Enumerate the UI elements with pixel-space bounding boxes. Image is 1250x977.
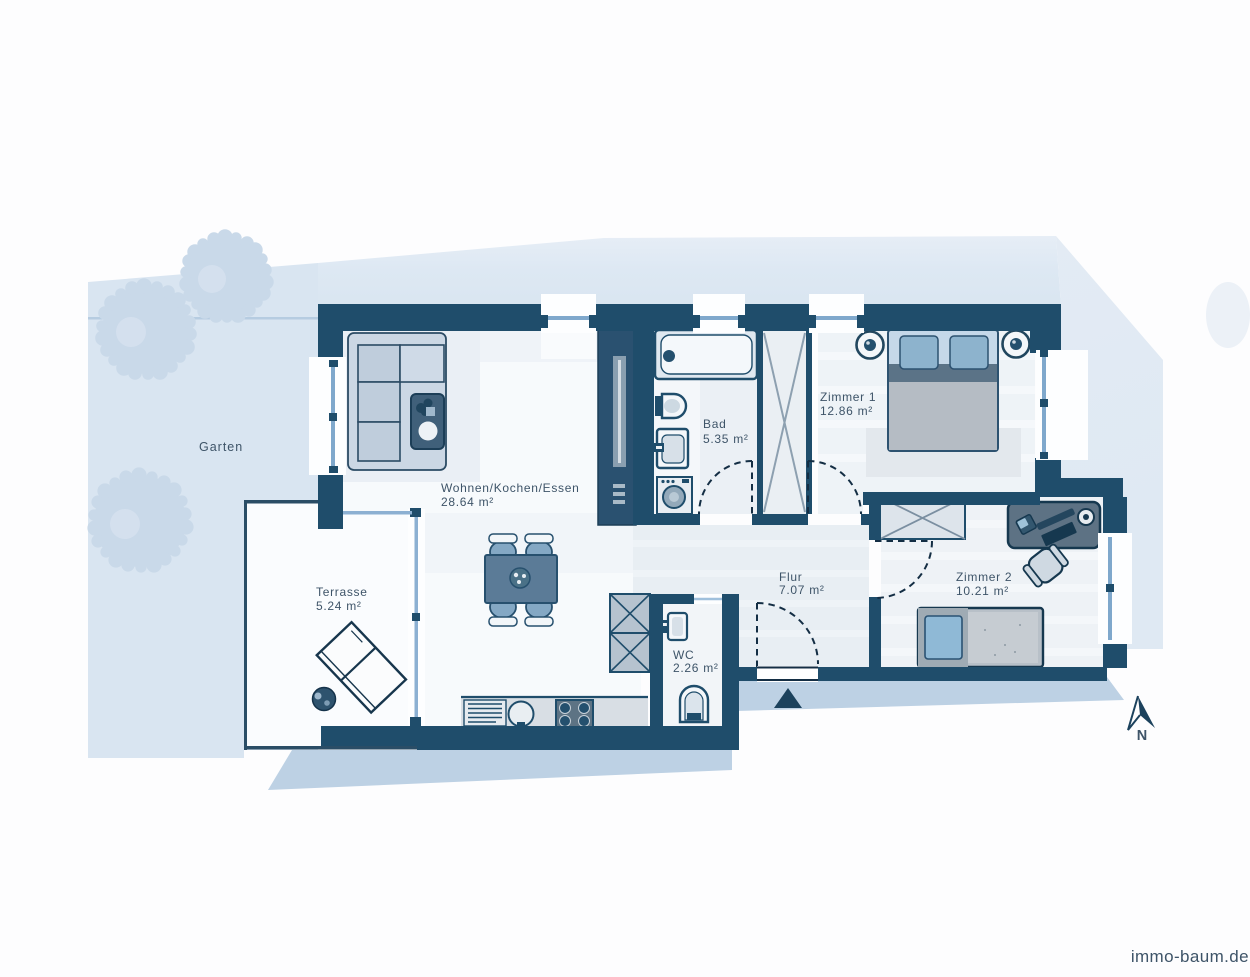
svg-text:5.24 m²: 5.24 m² xyxy=(316,599,362,613)
svg-text:immo-baum.de: immo-baum.de xyxy=(1131,947,1249,966)
svg-text:Bad: Bad xyxy=(703,417,726,431)
svg-text:12.86 m²: 12.86 m² xyxy=(820,404,873,418)
svg-text:Wohnen/Kochen/Essen: Wohnen/Kochen/Essen xyxy=(441,481,580,495)
svg-text:Zimmer 1: Zimmer 1 xyxy=(820,390,876,404)
svg-text:2.26 m²: 2.26 m² xyxy=(673,661,719,675)
svg-text:Zimmer 2: Zimmer 2 xyxy=(956,570,1012,584)
svg-text:28.64 m²: 28.64 m² xyxy=(441,495,494,509)
svg-text:Garten: Garten xyxy=(199,440,243,454)
svg-text:5.35 m²: 5.35 m² xyxy=(703,432,749,446)
svg-text:7.07 m²: 7.07 m² xyxy=(779,583,825,597)
svg-text:Flur: Flur xyxy=(779,570,802,584)
svg-text:N: N xyxy=(1137,728,1147,744)
svg-text:WC: WC xyxy=(673,648,694,662)
svg-text:Terrasse: Terrasse xyxy=(316,585,368,599)
svg-text:10.21 m²: 10.21 m² xyxy=(956,584,1009,598)
